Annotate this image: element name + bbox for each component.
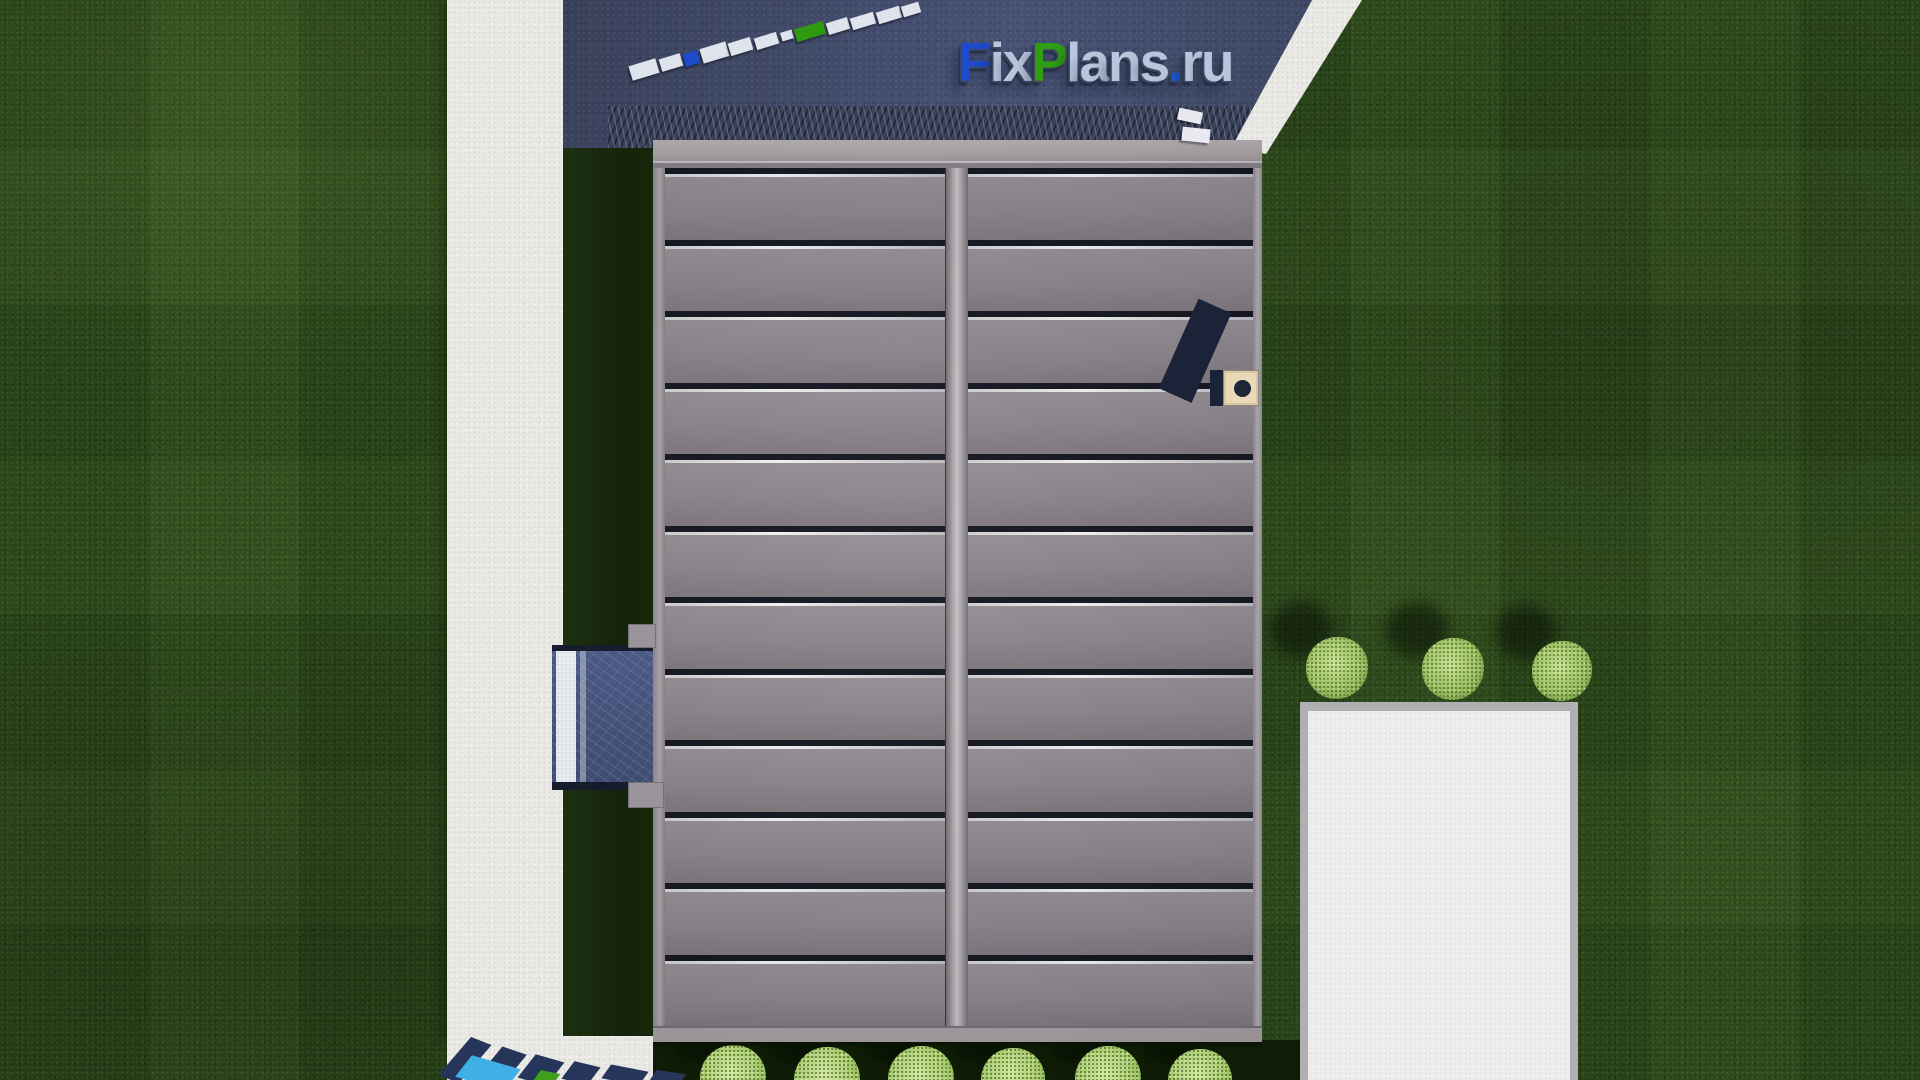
- panel-surface: [665, 463, 946, 526]
- panel-surface: [968, 606, 1253, 669]
- patio-surface: [1308, 711, 1570, 1080]
- house-roof: [653, 140, 1262, 1042]
- panel-surface: [665, 320, 946, 383]
- panel-surface: [665, 606, 946, 669]
- house-shadow-left: [563, 148, 653, 1036]
- roof-notch-bottom: [628, 782, 664, 808]
- logo-letter: s: [1140, 30, 1169, 94]
- panel-surface: [665, 535, 946, 598]
- roof-panel: [968, 812, 1253, 884]
- roof-panel: [968, 740, 1253, 812]
- roof-panel: [665, 168, 946, 240]
- panel-surface: [665, 392, 946, 455]
- roof-panel: [968, 669, 1253, 741]
- panel-surface: [968, 892, 1253, 955]
- tree: [1306, 637, 1368, 699]
- logo-letter: P: [1031, 30, 1066, 94]
- roof-panel: [968, 526, 1253, 598]
- panel-surface: [968, 535, 1253, 598]
- logo-letter: u: [1201, 30, 1233, 94]
- panel-surface: [968, 678, 1253, 741]
- panel-surface: [968, 821, 1253, 884]
- fixplans-logo-watermark: FixPlans.ru: [958, 30, 1233, 94]
- patio-terrace: [1300, 702, 1578, 1080]
- roof-ridge-cap: [946, 140, 968, 1042]
- roof-panel: [968, 955, 1253, 1027]
- footpath-left: [447, 0, 563, 1040]
- panel-surface: [665, 892, 946, 955]
- roof-panel: [665, 454, 946, 526]
- porch-steps: [556, 651, 576, 782]
- logo-letter: i: [990, 30, 1003, 94]
- ground-watermark-letter-top: [1181, 127, 1210, 144]
- tree: [1532, 641, 1592, 701]
- roof-panel: [665, 955, 946, 1027]
- roof-panel: [665, 597, 946, 669]
- roof-panel: [665, 383, 946, 455]
- roof-panel: [968, 597, 1253, 669]
- panel-surface: [968, 964, 1253, 1027]
- roof-panel: [968, 883, 1253, 955]
- roof-notch-top: [628, 624, 656, 648]
- logo-letter: a: [1079, 30, 1108, 94]
- roof-panel: [665, 240, 946, 312]
- panel-surface: [665, 821, 946, 884]
- roof-panel: [968, 168, 1253, 240]
- roof-panel: [665, 311, 946, 383]
- aerial-site-render: FixPlans.ru: [0, 0, 1920, 1080]
- logo-letter: x: [1003, 30, 1032, 94]
- panel-surface: [665, 964, 946, 1027]
- logo-letter: r: [1182, 30, 1201, 94]
- logo-letter: .: [1168, 30, 1181, 94]
- roof-panel: [665, 883, 946, 955]
- panel-surface: [665, 249, 946, 312]
- chimney-flue: [1234, 380, 1251, 397]
- panel-surface: [968, 463, 1253, 526]
- porch-step-edge: [580, 651, 586, 782]
- tree: [1422, 638, 1484, 700]
- roof-panel: [665, 740, 946, 812]
- roof-top-band: [653, 140, 1262, 168]
- panel-surface: [968, 749, 1253, 812]
- roof-panel: [968, 240, 1253, 312]
- roof-bottom-band: [653, 1026, 1262, 1042]
- panel-surface: [665, 678, 946, 741]
- roof-edge-right: [1253, 140, 1262, 1042]
- roof-edge-left: [653, 140, 665, 1042]
- panel-surface: [968, 177, 1253, 240]
- logo-letter: l: [1066, 30, 1079, 94]
- panel-surface: [665, 177, 946, 240]
- roof-panel: [665, 812, 946, 884]
- roof-panel: [665, 669, 946, 741]
- roof-panel: [968, 454, 1253, 526]
- panel-surface: [968, 249, 1253, 312]
- roof-slope-left: [665, 168, 946, 1026]
- logo-letter: n: [1108, 30, 1140, 94]
- panel-surface: [665, 749, 946, 812]
- roof-slope-right: [968, 168, 1253, 1026]
- chimney: [1224, 371, 1258, 405]
- roof-panel: [665, 526, 946, 598]
- entrance-porch: [552, 645, 656, 790]
- logo-letter: F: [958, 30, 990, 94]
